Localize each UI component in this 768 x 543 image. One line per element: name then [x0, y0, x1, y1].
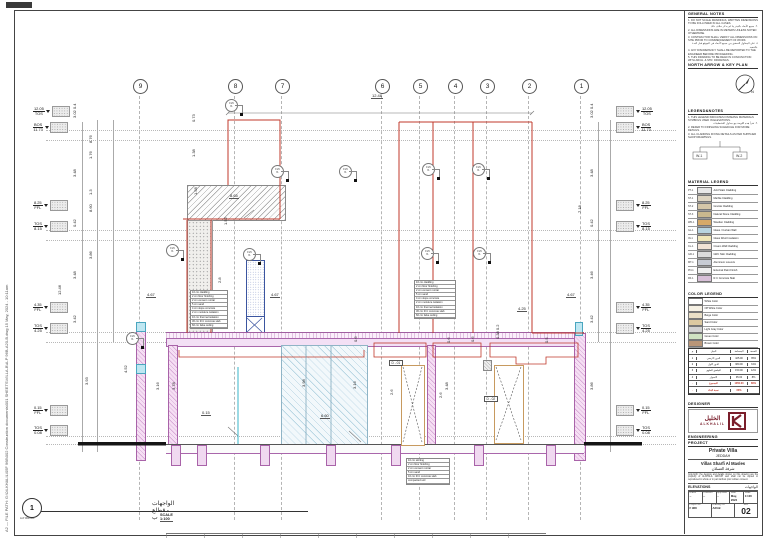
material-name: Glass Wool Insulation [712, 237, 758, 240]
dimension-value: 0.42 [589, 219, 594, 227]
material-code: CL-1 [688, 245, 697, 248]
svg-text:N: N [751, 89, 754, 94]
finish-tag: FL5 f1 [225, 99, 238, 112]
foundation-stub [326, 445, 336, 466]
material-legend-row: PT-1 Acid Stain Cladding [688, 187, 758, 195]
dimension-label: 12.46 [57, 285, 62, 295]
elevation-datum: FFL [641, 308, 651, 312]
dimension-label: 3.48 [589, 169, 594, 177]
material-legend-row: MT-1 Aluminum Louvers [688, 259, 758, 267]
material-name: GRC Skin Cladding [712, 253, 758, 256]
drawing-title-en: ELEVATIONS [688, 485, 710, 489]
door-2 [494, 365, 524, 444]
grid-bubble: 2 [522, 79, 537, 94]
tag-dot [258, 262, 261, 265]
grid-bubble: 1 [574, 79, 589, 94]
elevation-marker: 0.15 FFL [616, 405, 651, 416]
dimension-value: 12.46 [57, 285, 62, 295]
dimension-label: 1.38 [191, 149, 196, 157]
foundation-stub [546, 445, 556, 466]
project-city: JEDDAH [688, 454, 758, 460]
elevation-arrow-icon [45, 126, 49, 129]
dimension-label: 0.6 [446, 337, 451, 343]
elevation-datum: 11.73 [641, 128, 651, 132]
elevation-marker: TOS 8.15 [616, 221, 651, 232]
grid-bubble: 4 [448, 79, 463, 94]
material-swatch [697, 195, 712, 202]
elevation-marker: TOS 0.08 [33, 425, 68, 436]
dimension-label: 1.76 [88, 151, 93, 159]
elevation-marker: 4.35 FFL [616, 302, 651, 313]
signature-fields-row: Drawn-- Checked-- Approved-- DateMay, 20… [688, 491, 758, 503]
steel-column [246, 260, 265, 318]
grid-line [381, 96, 382, 520]
alkhalil-logo-icon [728, 412, 746, 430]
elevation-arrow-icon [636, 306, 640, 309]
finish-tag: FL5 f1 [339, 165, 352, 178]
legend-tree-diagram: W-1 W-2 [688, 139, 752, 161]
dimension-value: 1.3 [88, 189, 93, 195]
field-drawing-no: Drawing No.A20-B [712, 504, 735, 517]
slab-edge-box [50, 405, 68, 416]
mid-wall [427, 345, 436, 446]
grid-bubble-label: 1 [580, 83, 584, 90]
dimension-value: 8.60 [88, 204, 93, 212]
svg-text:W-1: W-1 [696, 154, 702, 158]
sheet-corner-tab [6, 2, 32, 8]
field-drawn: Drawn-- [689, 492, 703, 503]
dimension-label: 7.18 [577, 205, 582, 213]
elevation-text: TOS 8.15 [641, 222, 651, 232]
material-code: WD-1 [688, 221, 697, 224]
material-swatch [697, 187, 712, 194]
dimension-label: 1.58 [193, 187, 198, 195]
dim-chain-line [82, 122, 83, 452]
roof-buildup-callout-1: 10 cm cladding2 cm floor finishing2 cm c… [190, 290, 228, 329]
elevation-arrow-icon [636, 126, 640, 129]
material-swatch [697, 211, 712, 218]
foundation-stub [260, 445, 270, 466]
material-legend-row: ST-1 Marble Cladding [688, 195, 758, 203]
slab-edge-box [616, 405, 634, 416]
color-swatch [688, 305, 703, 312]
dimension-label: 3.98 [301, 379, 306, 387]
grid-bubble-label: 3 [486, 83, 490, 90]
dimension-value: 0.15 [202, 410, 210, 415]
ref-dotted-line [46, 230, 676, 231]
dimension-value: 0.42 [72, 219, 77, 227]
designer-logo: الخليل ALKHALIL [688, 409, 758, 433]
dimension-label: 3.46 [589, 271, 594, 279]
dimension-value: 0.5 [544, 337, 549, 343]
ref-dotted-line [46, 240, 676, 241]
material-code: GL-1 [688, 229, 697, 232]
dimension-label: 4.67 [146, 292, 156, 298]
color-swatch [688, 326, 703, 333]
dimension-value: 7.18 [577, 205, 582, 213]
elevation-datum: TOS [33, 112, 45, 116]
material-code: ST-1 [688, 197, 697, 200]
dimension-value: 3.02 0.4 [589, 104, 594, 118]
elevation-datum: TOS [641, 112, 653, 116]
dimension-label: 3.48 [72, 271, 77, 279]
finish-tag: FL5 f1 [473, 247, 486, 260]
elevation-datum: FFL [33, 411, 43, 415]
dimension-value: 3.86 [88, 251, 93, 259]
material-swatch [697, 243, 712, 250]
door-label-text: D - 02 [487, 397, 496, 401]
tag-dot [141, 346, 144, 349]
view-scale: SCALE 1:100 [160, 513, 173, 522]
elevation-text: 12.05 TOS [641, 107, 653, 117]
area-schedule-table: م البيان المساحة النسبة 1 الدور الأرضي 4… [688, 348, 760, 395]
designer-logo-text: الخليل ALKHALIL [700, 416, 725, 426]
north-keyplan-section: NORTH ARROW & KEY PLAN N [688, 63, 758, 107]
dimension-value: 3.48 [589, 169, 594, 177]
grid-line [281, 96, 282, 520]
dimension-value: 3.02 0.4 [72, 104, 77, 118]
elevation-text: 0.15 FFL [33, 406, 43, 416]
dimension-value: 3.16 [352, 381, 357, 389]
elevation-text: 8.25 FFL [641, 201, 651, 211]
number-fields-row: Project No.F 968 Drawing No.A20-B Rev.02 [688, 503, 758, 518]
elevation-arrow-icon [636, 225, 640, 228]
ref-dotted-line [46, 130, 676, 131]
tag-dot [286, 179, 289, 182]
grid-line [486, 96, 487, 520]
material-name: R.C Concrete Slab [712, 277, 758, 280]
spec-line: 60 cm false ceiling [191, 324, 227, 328]
dimension-label: 0.73 [191, 114, 196, 122]
material-swatch [697, 219, 712, 226]
dimension-label: 2.6 [389, 389, 394, 395]
dimension-label: 0.6 [470, 336, 475, 342]
material-legend-row: IN-1 Glass Wool Insulation [688, 235, 758, 243]
drawing-title-row: ELEVATIONS الواجهات [688, 484, 758, 491]
dimension-label: 4.67 [566, 292, 576, 298]
field-checked: Checked-- [703, 492, 717, 503]
material-code: IN-1 [688, 237, 697, 240]
dimension-label: 3.16 [155, 382, 160, 390]
general-notes-section: GENERAL NOTES 1. DO NOT SCALE DRAWINGS, … [688, 12, 758, 63]
elevation-arrow-icon [636, 327, 640, 330]
color-legend-title: COLOR LEGEND [688, 292, 758, 298]
grid-line [528, 96, 529, 520]
dimension-value: 4.67 [147, 292, 155, 297]
grid-bubble: 9 [133, 79, 148, 94]
legend-note-line: 2. REFER TO FINISHING SCHEDULE FOR MORE … [688, 126, 758, 133]
dimension-value: 8.65 [230, 193, 238, 198]
slab-edge-box [50, 302, 68, 313]
grid-bubble-label: 4 [454, 83, 458, 90]
elevation-arrow-icon [44, 204, 48, 207]
dimension-label: 0.15 [201, 410, 211, 416]
material-legend-row: CL-1 Cream Wall Cladding [688, 243, 758, 251]
grid-bubble-label: 9 [139, 83, 143, 90]
elevation-arrow-icon [44, 409, 48, 412]
engineering-title: ENGINEERING [688, 435, 758, 441]
elevation-text: BOS 11.73 [33, 123, 43, 133]
dimension-value: 3.46 [589, 271, 594, 279]
dimension-label: 0.5 [544, 337, 549, 343]
client-name-ar: شرفة العسلان [688, 466, 758, 473]
tag-sub: f1 [478, 254, 480, 257]
dimension-value: 3.42 [72, 315, 77, 323]
north-keyplan-title: NORTH ARROW & KEY PLAN [688, 63, 758, 69]
color-swatch [688, 298, 703, 305]
door-label: D - 01 [389, 360, 403, 366]
foundation-stub [197, 445, 207, 466]
view-number: 1 [30, 505, 34, 512]
elevation-marker: TOS 4.25 [616, 323, 651, 334]
ref-dotted-line [46, 140, 676, 141]
dimension-value: 0.6 [446, 337, 451, 343]
elevation-text: 12.05 TOS [33, 107, 45, 117]
slab-edge-box [616, 323, 634, 334]
general-note-line: 4. ANY DISCREPANCY SHALL BE REPORTED TO … [688, 49, 758, 56]
dimension-label: 3.42 [589, 315, 594, 323]
grid-bubble: 3 [480, 79, 495, 94]
dimension-value: 4.67 [567, 292, 575, 297]
color-name: Brown Color [703, 342, 758, 345]
dimension-value: 0.38 0.2 [495, 325, 500, 339]
area-table-row: - نسبة البناء 60% [689, 387, 759, 393]
material-legend-row: RF-1 R.C Concrete Slab [688, 275, 758, 283]
elevation-datum: 8.15 [641, 227, 651, 231]
grid-bubble: 7 [275, 79, 290, 94]
grid-bubble-label: 7 [281, 83, 285, 90]
general-note-line: 5. THIS DRAWING TO BE READ IN CONJUNCTIO… [688, 56, 758, 63]
elevation-text: TOS 4.25 [641, 324, 651, 334]
material-code: ST-2 [688, 205, 697, 208]
elevation-arrow-icon [44, 429, 48, 432]
title-block-panel: GENERAL NOTES 1. DO NOT SCALE DRAWINGS, … [686, 10, 761, 534]
material-swatch [697, 259, 712, 266]
dimension-label: 3.78 [171, 382, 176, 390]
project-section: PROJECT Private Villa JEDDAH Villas Shar… [688, 441, 758, 518]
dimension-label: 8.76 [88, 135, 93, 143]
dimension-label: 0.6 [353, 336, 358, 342]
tag-sub: f1 [230, 106, 232, 109]
color-name: Green Color [703, 335, 758, 338]
dimension-value: 3.86 [589, 382, 594, 390]
finish-tag: FL5 f1 [126, 332, 139, 345]
slab-edge-box [50, 221, 68, 232]
view-sheet-code: A-P 000-001 [20, 517, 35, 520]
elevation-text: BOS 11.73 [641, 123, 651, 133]
project-title: PROJECT [688, 441, 758, 447]
material-swatch [697, 251, 712, 258]
grid-bubble-label: 6 [381, 83, 385, 90]
grid-bubble-label: 8 [234, 83, 238, 90]
material-code: MT-1 [688, 261, 697, 264]
dimension-value: 4.67 [271, 292, 279, 297]
tag-sub: f1 [248, 255, 250, 258]
tag-dot [487, 177, 490, 180]
material-swatch [697, 227, 712, 234]
elevation-arrow-icon [636, 110, 640, 113]
grid-line [234, 96, 235, 520]
material-code: RF-1 [688, 277, 697, 280]
elevation-marker: BOS 11.73 [616, 122, 651, 133]
finish-tag: FL5 f1 [166, 244, 179, 257]
material-name: Marble Cladding [712, 197, 758, 200]
field-date: DateMay, 2024 [730, 492, 744, 503]
material-legend-row: PN-1 External Paint Finish [688, 267, 758, 275]
drawing-sheet: A2 — FILE PATH: G:\04-KHALIL\05F 968\002… [0, 0, 768, 543]
dimension-label: 3.42 [72, 315, 77, 323]
material-legend-row: WD-1 Wooden Cladding [688, 219, 758, 227]
elevation-arrow-icon [44, 225, 48, 228]
floor-buildup-callout: 10 cm skirting2 cm floor finishing2 cm c… [406, 458, 450, 485]
elevation-arrow-icon [44, 306, 48, 309]
dimension-value: 0.6 [470, 336, 475, 342]
dimension-label: 2.8 [217, 277, 222, 283]
material-name: Wooden Cladding [712, 221, 758, 224]
dimension-label: 3.48 [72, 169, 77, 177]
tag-dot [354, 179, 357, 182]
left-wall-glass-cap-top [136, 322, 146, 332]
copyright-disclaimer: Copyright: the designs and details shown… [688, 473, 758, 484]
elevation-text: 4.35 FFL [33, 303, 43, 313]
material-name: Granite Cladding [712, 205, 758, 208]
material-code: GR-1 [688, 253, 697, 256]
color-swatch [688, 312, 703, 319]
room-wall-left [168, 345, 178, 446]
file-path-vertical-text: A2 — FILE PATH: G:\04-KHALIL\05F 968\002… [4, 285, 9, 532]
elevation-marker: 12.05 TOS [616, 106, 653, 117]
dimension-label: 0.38 0.2 [495, 325, 500, 339]
finish-tag: FL5 f1 [271, 165, 284, 178]
dimension-value: 0.6 [353, 336, 358, 342]
slab-edge-box [616, 302, 634, 313]
elevation-datum: 0.08 [33, 431, 43, 435]
dimension-label: 3.48 [444, 382, 449, 390]
dimension-value: 3.42 [589, 315, 594, 323]
grid-bubble: 6 [375, 79, 390, 94]
dimension-value: 2.6 [389, 389, 394, 395]
elevation-marker: BOS 11.73 [33, 122, 68, 133]
tag-sub: f1 [477, 170, 479, 173]
ground-floor-slab [166, 444, 584, 454]
dimension-label: 4.52 [123, 365, 128, 373]
elevation-datum: 11.73 [33, 128, 43, 132]
legend-notes-title: LEGEND&NOTES [688, 109, 758, 115]
material-code: ST-3 [688, 213, 697, 216]
color-name: Light Gray Color [703, 328, 758, 331]
left-wall-glass-cap-mid [136, 364, 146, 374]
elevation-text: 8.25 FFL [33, 201, 43, 211]
color-swatch [688, 319, 703, 326]
finish-tag: FL5 f1 [243, 248, 256, 261]
legend-notes-section: LEGEND&NOTES 1. THIS LEGEND INDICATES FI… [688, 109, 758, 162]
view-number-bubble: 1 [22, 498, 42, 518]
elevation-text: 0.15 FFL [641, 406, 651, 416]
elevation-marker: 0.15 FFL [33, 405, 68, 416]
material-code: PN-1 [688, 269, 697, 272]
dimension-value: 2.6 [438, 392, 443, 398]
tag-sub: f1 [171, 251, 173, 254]
color-name: White Color [703, 300, 758, 303]
elevation-datum: FFL [33, 308, 43, 312]
dim-chain-line [598, 122, 599, 342]
tag-sub: f1 [344, 172, 346, 175]
dimension-label: 0.42 [72, 219, 77, 227]
material-legend-row: ST-2 Granite Cladding [688, 203, 758, 211]
elevation-datum: FFL [641, 411, 651, 415]
color-swatch [688, 340, 703, 347]
general-note-line: 2. ALL DIMENSIONS ARE IN METERS UNLESS N… [688, 29, 758, 36]
elevation-arrow-icon [46, 110, 50, 113]
material-name: Natural Stone Cladding [712, 213, 758, 216]
door-label: D - 02 [484, 396, 498, 402]
elevation-datum: 0.08 [641, 431, 651, 435]
dimension-label: 8.65 [229, 193, 239, 199]
door-1 [401, 365, 425, 446]
color-name: Off White Color [703, 307, 758, 310]
general-notes-title: GENERAL NOTES [688, 12, 758, 18]
material-legend-row: ST-3 Natural Stone Cladding [688, 211, 758, 219]
elevation-arrow-icon [636, 204, 640, 207]
tag-sub: f1 [427, 170, 429, 173]
tag-dot [488, 261, 491, 264]
dimension-label: 3.86 [88, 251, 93, 259]
field-scale: Scale1:100 [744, 492, 757, 503]
tag-sub: f1 [276, 172, 278, 175]
spec-line: compacted soil [407, 479, 449, 483]
material-swatch [697, 235, 712, 242]
elevation-datum: 8.15 [33, 227, 43, 231]
door-label-text: D - 01 [392, 361, 401, 365]
legend-note-line: 3. ALL CLADDING FIXING DETAILS AS PER SU… [688, 133, 758, 140]
color-legend-row: Brown Color [688, 341, 758, 348]
material-name: Glass / Curtain Wall [712, 229, 758, 232]
dimension-value: 12.48 [372, 93, 382, 98]
designer-title: DESIGNER [688, 402, 758, 408]
grid-bubble-label: 2 [528, 83, 532, 90]
dimension-label: 1.3 [88, 189, 93, 195]
elevation-marker: TOS 4.25 [33, 323, 68, 334]
elevation-marker: 4.35 FFL [33, 302, 68, 313]
slab-edge-box [50, 323, 68, 334]
elevation-text: TOS 4.25 [33, 324, 43, 334]
dimension-value: 4.52 [123, 365, 128, 373]
dimension-label: 4.25 [517, 306, 527, 312]
elevation-text: TOS 0.08 [641, 426, 651, 436]
roof-buildup-callout-2: 10 cm cladding2 cm floor finishing2 cm c… [414, 280, 456, 319]
dimension-value: 1.58 [193, 187, 198, 195]
dimension-value: 8.76 [88, 135, 93, 143]
slab-edge-box [616, 122, 634, 133]
elevation-marker: 12.05 TOS [33, 106, 70, 117]
dimension-label: 0.42 [589, 219, 594, 227]
tag-dot [436, 261, 439, 264]
dimension-label: 8.60 [88, 204, 93, 212]
slab-edge-box [616, 425, 634, 436]
slab-edge-box [616, 221, 634, 232]
dimension-label: 1.52 [223, 217, 228, 225]
scale-ruler [166, 533, 546, 538]
dimension-value: 3.48 [72, 271, 77, 279]
elevation-arrow-icon [636, 409, 640, 412]
elevation-marker: 8.25 FFL [616, 200, 651, 211]
dimension-value: 1.38 [191, 149, 196, 157]
material-legend-section: MATERIAL LEGEND PT-1 Acid Stain Cladding… [688, 180, 758, 283]
dimension-value: 3.78 [171, 382, 176, 390]
material-name: Cream Wall Cladding [712, 245, 758, 248]
elevation-marker: 8.25 FFL [33, 200, 68, 211]
material-swatch [697, 275, 712, 282]
